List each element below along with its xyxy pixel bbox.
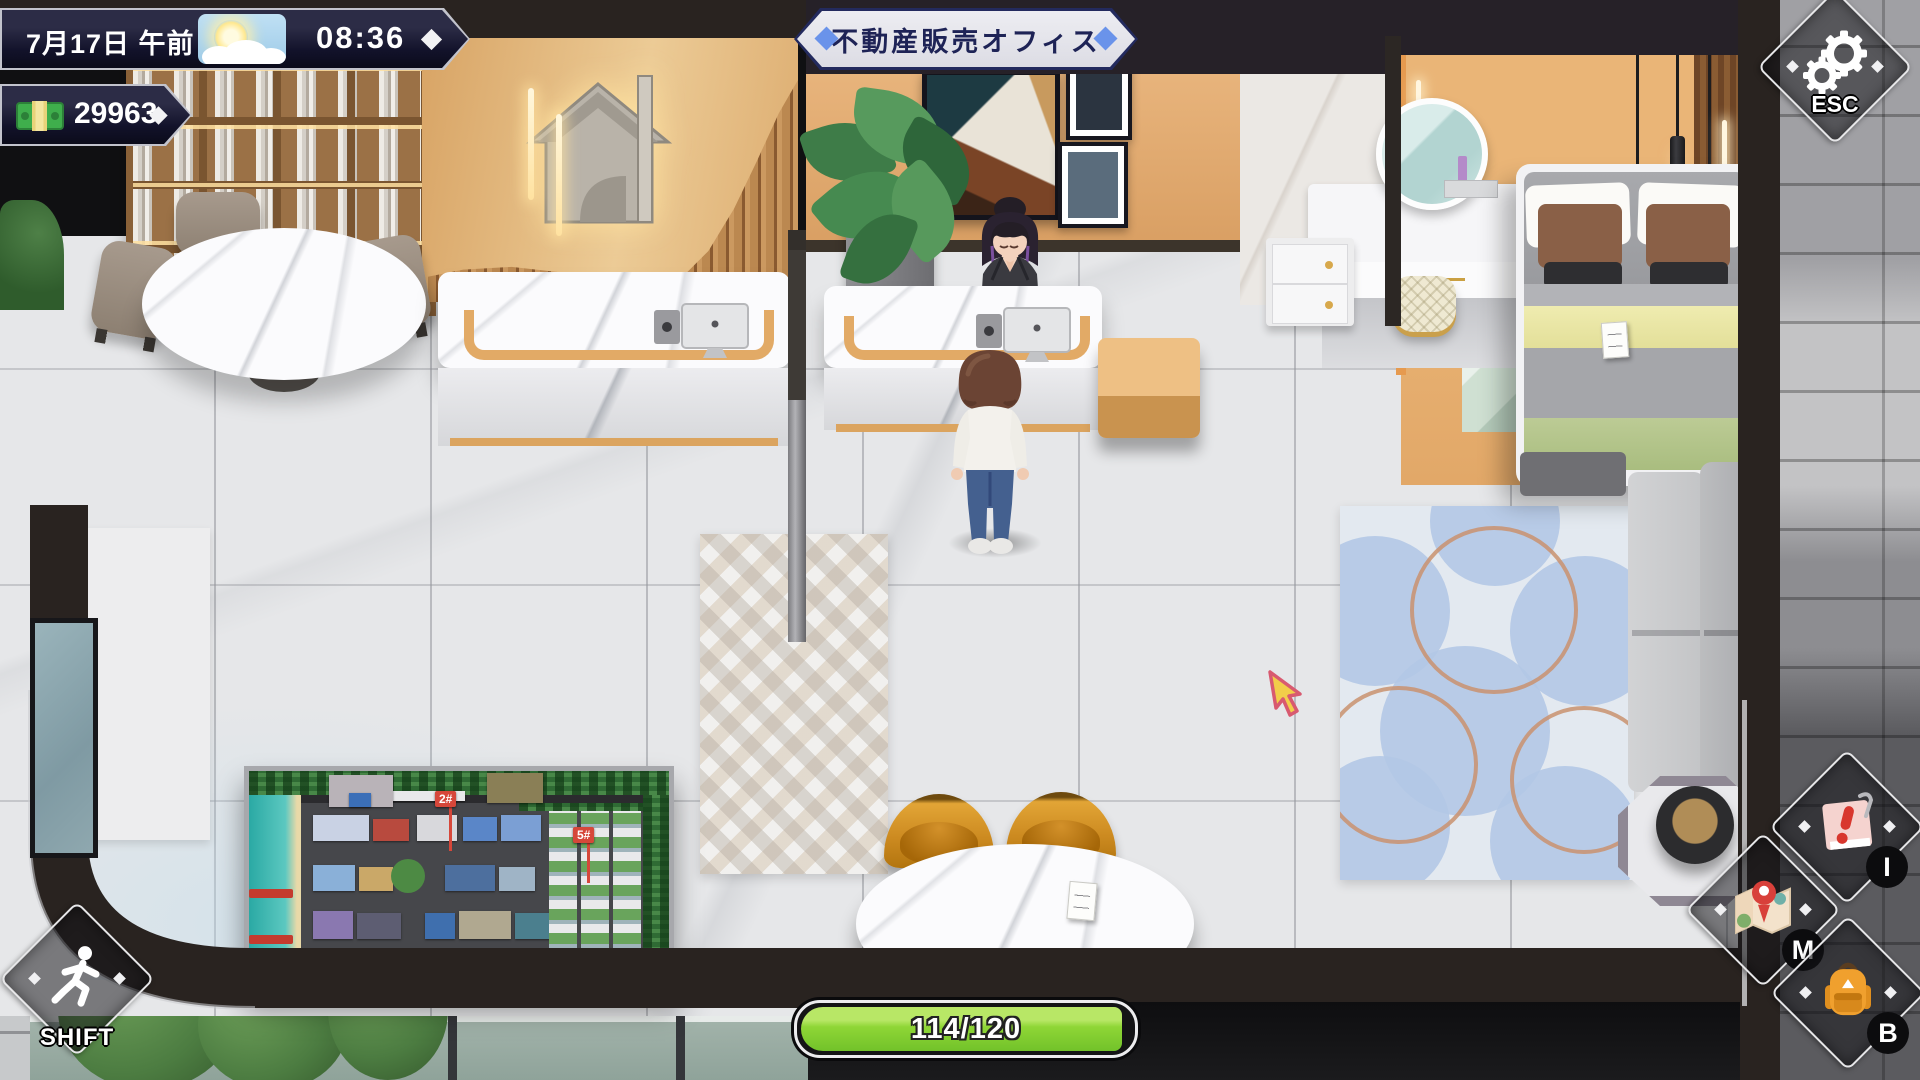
window-pane: [30, 618, 98, 858]
game-screen: 2# 5#: [0, 0, 1920, 1080]
esc-button[interactable]: ESC: [1760, 0, 1910, 142]
cursor-pointer: [1262, 668, 1314, 724]
bag-button[interactable]: B: [1773, 918, 1920, 1068]
weather-icon: [198, 14, 286, 64]
info-key-badge: I: [1866, 846, 1908, 888]
esc-label: ESC: [1760, 91, 1910, 118]
location-title: 不動産販売オフィス: [831, 20, 1100, 59]
money-amount: 29963: [74, 97, 157, 131]
stamina-bar: 114/120: [794, 1000, 1138, 1058]
date-label: 7月17日 午前: [26, 22, 195, 61]
money-bar: 29963: [0, 84, 192, 146]
location-banner: 不動産販売オフィス: [794, 8, 1138, 70]
divider-pole: [788, 250, 806, 642]
money-icon: [16, 100, 64, 132]
stamina-label: 114/120: [797, 1003, 1135, 1055]
gear-icon: [1798, 26, 1872, 100]
backpack-icon: [1816, 957, 1880, 1021]
datetime-bar: 7月17日 午前 08:36: [0, 8, 470, 70]
shift-label: SHIFT: [2, 1024, 152, 1052]
bag-key-badge: B: [1867, 1012, 1909, 1054]
running-person-icon: [45, 943, 109, 1007]
shift-button[interactable]: SHIFT: [2, 904, 152, 1054]
time-label: 08:36: [316, 20, 405, 56]
building-walls: [0, 0, 1920, 1080]
